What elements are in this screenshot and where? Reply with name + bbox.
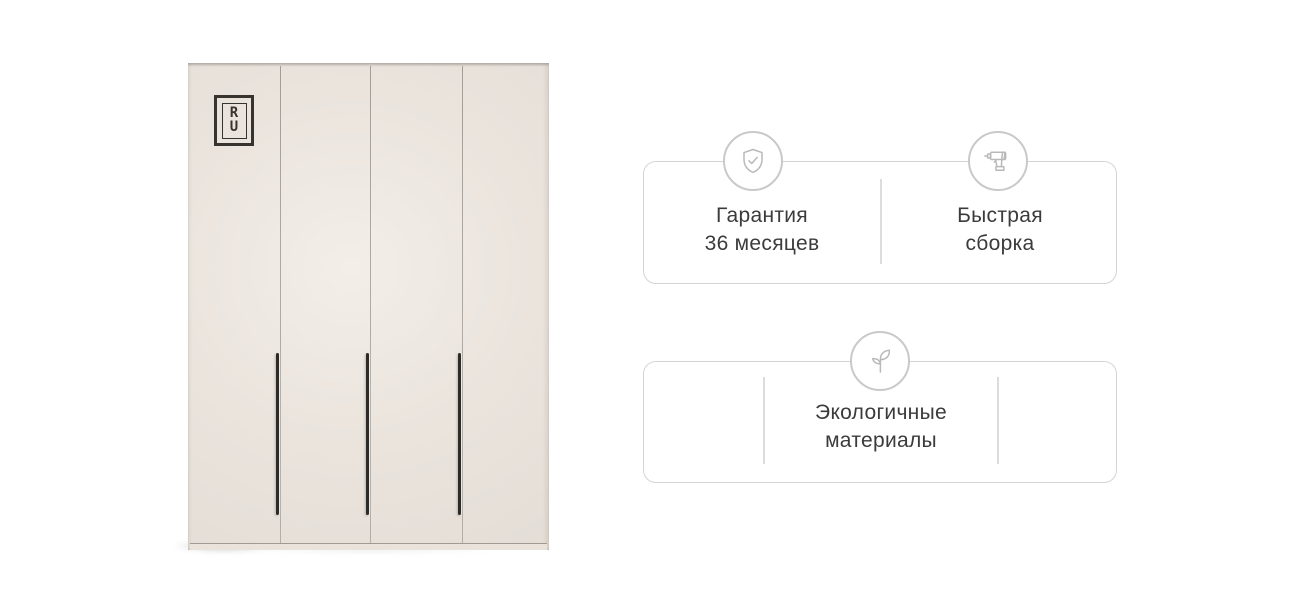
feature-label-line: материалы	[765, 427, 997, 455]
brand-logo: R U	[214, 95, 254, 146]
wardrobe-handle	[276, 353, 279, 515]
drill-icon	[982, 145, 1014, 177]
feature-label-eco: Экологичные материалы	[765, 399, 997, 455]
feature-label-line: сборка	[882, 230, 1118, 258]
wardrobe-handle	[366, 353, 369, 515]
assembly-badge	[968, 131, 1028, 191]
eco-badge	[850, 331, 910, 391]
door-seam	[462, 66, 463, 543]
door-seam	[370, 66, 371, 543]
feature-label-line: Экологичные	[765, 399, 997, 427]
warranty-badge	[723, 131, 783, 191]
feature-card-eco-materials: Экологичные материалы	[643, 361, 1117, 483]
shield-check-icon	[737, 145, 769, 177]
wardrobe-plinth	[190, 543, 547, 550]
brand-logo-letters: R U	[222, 103, 247, 139]
feature-label-assembly: Быстрая сборка	[882, 202, 1118, 258]
feature-label-line: Гарантия	[644, 202, 880, 230]
feature-label-line: 36 месяцев	[644, 230, 880, 258]
logo-letter-bottom: U	[230, 121, 238, 135]
feature-card-warranty-assembly: Гарантия 36 месяцев Быстрая сборка	[643, 161, 1117, 284]
card-divider	[997, 377, 999, 464]
wardrobe-product-image: R U	[188, 63, 549, 550]
feature-label-line: Быстрая	[882, 202, 1118, 230]
feature-label-warranty: Гарантия 36 месяцев	[644, 202, 880, 258]
wardrobe-handle	[458, 353, 461, 515]
product-feature-section: R U	[0, 0, 1310, 608]
leaf-icon	[864, 345, 896, 377]
door-seam	[280, 66, 281, 543]
